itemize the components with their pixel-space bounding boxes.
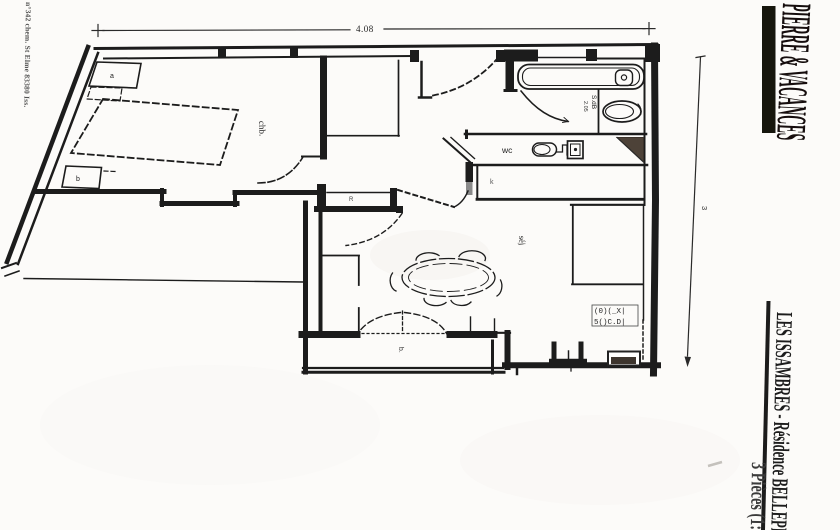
svg-text:3 Pièces (1:: 3 Pièces (1: (746, 462, 771, 530)
svg-text:k: k (490, 179, 494, 186)
svg-text:(0)(_X|: (0)(_X| (594, 308, 626, 316)
svg-text:séj: séj (517, 235, 528, 245)
svg-text:chb.: chb. (257, 121, 268, 137)
svg-text:4.08: 4.08 (356, 24, 374, 34)
svg-text:b.: b. (397, 347, 404, 353)
svg-text:3: 3 (700, 206, 709, 210)
svg-text:S.dB: S.dB (590, 95, 597, 109)
svg-text:R: R (349, 197, 354, 203)
svg-text:a: a (110, 73, 114, 80)
svg-text:n°342 chem. St Elme 83380 Iss.: n°342 chem. St Elme 83380 Iss. (22, 2, 33, 108)
svg-text:wc: wc (501, 145, 513, 155)
svg-text:2.05: 2.05 (582, 101, 588, 112)
svg-text:PIERRE & VACANCES: PIERRE & VACANCES (767, 3, 819, 142)
svg-text:b: b (76, 176, 80, 183)
